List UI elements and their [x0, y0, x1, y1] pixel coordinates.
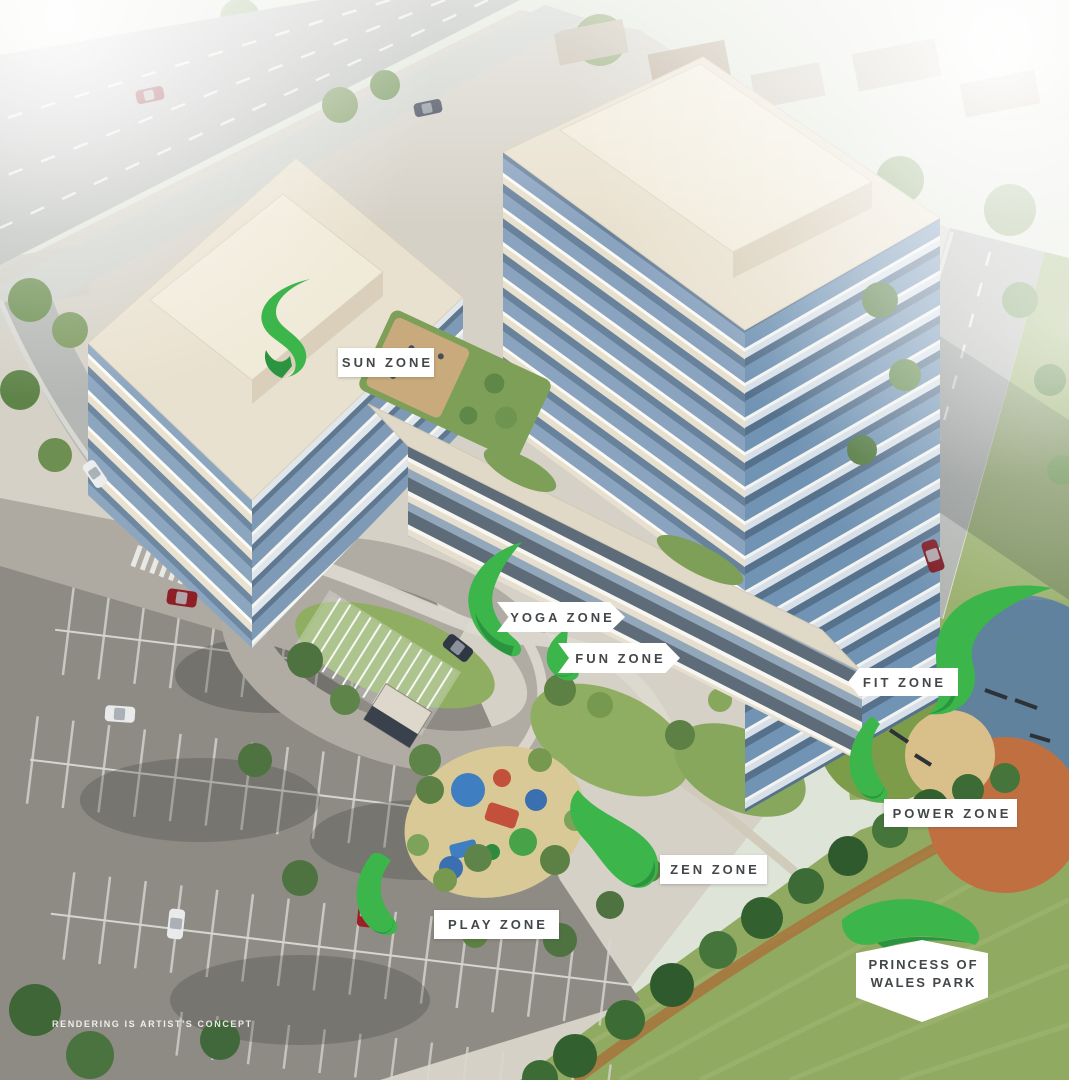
artists-concept-disclaimer: RENDERING IS ARTIST'S CONCEPT — [52, 1019, 253, 1029]
label-play-zone-text: PLAY ZONE — [448, 917, 548, 932]
haze-right — [720, 120, 1069, 600]
label-power-zone-text: POWER ZONE — [893, 806, 1012, 821]
aerial-site-rendering: SUN ZONE YOGA ZONE FUN ZONE FIT ZONE POW… — [0, 0, 1069, 1080]
label-yoga-zone-text: YOGA ZONE — [510, 610, 615, 625]
label-sun-zone-text: SUN ZONE — [342, 355, 433, 370]
label-play-zone: PLAY ZONE — [434, 910, 559, 939]
label-fun-zone: FUN ZONE — [558, 643, 680, 673]
label-fun-zone-text: FUN ZONE — [575, 651, 665, 666]
label-power-zone: POWER ZONE — [884, 799, 1017, 827]
label-fit-zone: FIT ZONE — [848, 668, 958, 696]
park-label-line2: WALES PARK — [871, 974, 977, 992]
label-yoga-zone: YOGA ZONE — [497, 602, 625, 632]
label-sun-zone: SUN ZONE — [338, 348, 434, 377]
label-fit-zone-text: FIT ZONE — [863, 675, 946, 690]
label-zen-zone-text: ZEN ZONE — [670, 862, 760, 877]
label-zen-zone: ZEN ZONE — [660, 855, 767, 884]
park-label-line1: PRINCESS OF — [868, 956, 978, 974]
